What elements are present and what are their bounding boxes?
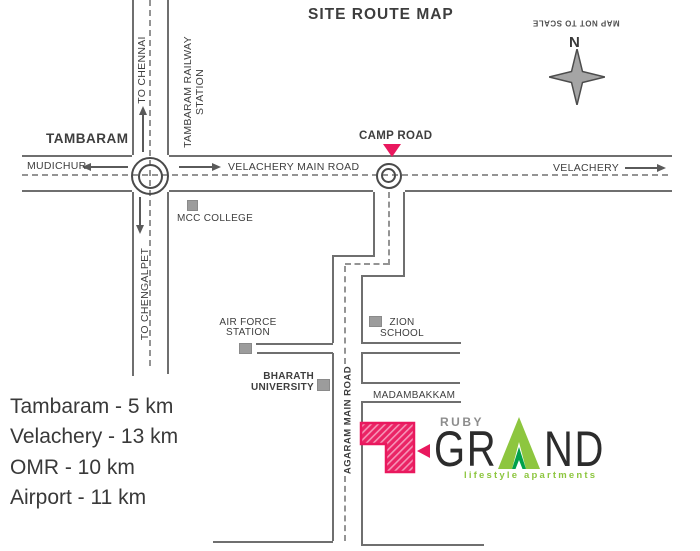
label-madambakkam: MADAMBAKKAM: [373, 390, 455, 401]
road-edge: [361, 544, 484, 546]
air-force-station-marker: [239, 343, 252, 354]
logo-brand-left: GR: [434, 424, 497, 474]
label-mcc-college: MCC COLLEGE: [177, 213, 253, 224]
label-velachery: VELACHERY: [553, 162, 619, 174]
road-edge: [167, 0, 169, 155]
road-edge: [213, 541, 333, 543]
road-centerline: [344, 266, 346, 364]
distance-item: Tambaram - 5 km: [10, 395, 173, 419]
road-edge: [169, 190, 373, 192]
logo-brand-right: ND: [544, 424, 605, 474]
page-title: SITE ROUTE MAP: [308, 6, 454, 24]
bharath-university-marker: [317, 379, 330, 391]
road-edge: [132, 0, 134, 155]
label-camp-road: CAMP ROAD: [359, 130, 432, 142]
project-site-marker: [359, 421, 417, 475]
road-edge: [373, 192, 375, 256]
label-agaram-main-road: AGARAM MAIN ROAD: [343, 366, 354, 474]
logo-tagline: lifestyle apartments: [464, 470, 597, 481]
camp-road-marker-icon: [383, 144, 401, 157]
road-centerline: [345, 263, 389, 265]
road-edge: [256, 343, 333, 345]
road-centerline: [388, 192, 390, 265]
tambaram-roundabout-inner: [138, 164, 163, 189]
arrow-down-icon: [139, 197, 141, 226]
label-bharath-university: BHARATH UNIVERSITY: [230, 372, 314, 393]
road-edge: [403, 192, 405, 276]
distance-item: Velachery - 13 km: [10, 425, 178, 449]
label-zion-school: ZION SCHOOL: [376, 317, 428, 339]
road-edge: [169, 155, 672, 157]
road-edge: [361, 342, 461, 344]
road-edge: [361, 401, 461, 403]
road-edge: [332, 255, 375, 257]
label-tambaram: TAMBARAM: [46, 131, 128, 146]
road-edge: [132, 192, 134, 376]
distance-item: Airport - 11 km: [10, 486, 146, 510]
road-edge: [361, 277, 363, 342]
road-edge: [405, 190, 672, 192]
label-mudichur: MUDICHUR: [27, 160, 87, 172]
label-velachery-main-road: VELACHERY MAIN ROAD: [228, 161, 359, 173]
mcc-college-marker: [187, 200, 198, 211]
road-edge: [167, 192, 169, 374]
site-pointer-icon: [417, 444, 430, 458]
map-scale-note: MAP NOT TO SCALE: [532, 19, 619, 28]
label-air-force-station: AIR FORCE STATION: [205, 318, 291, 338]
label-to-chengalpet: TO CHENGALPET: [139, 248, 151, 340]
road-edge: [22, 155, 132, 157]
arrow-up-icon: [142, 114, 144, 152]
road-edge: [361, 352, 460, 354]
road-edge: [332, 255, 334, 343]
road-edge: [361, 382, 460, 384]
road-centerline: [344, 476, 346, 541]
arrow-left-icon: [90, 166, 128, 168]
road-edge: [332, 353, 334, 541]
arrow-right-icon: [179, 166, 213, 168]
road-edge: [257, 352, 333, 354]
road-centerline: [22, 174, 668, 176]
label-tambaram-railway-station: TAMBARAM RAILWAY STATION: [182, 36, 206, 148]
road-edge: [22, 190, 132, 192]
label-to-chennai: TO CHENNAI: [136, 36, 148, 104]
logo-peak-icon: [496, 417, 542, 469]
distance-item: OMR - 10 km: [10, 456, 135, 480]
road-edge: [361, 275, 405, 277]
road-edge: [361, 352, 363, 382]
compass-icon: [549, 49, 605, 105]
site-route-map: SITE ROUTE MAP MAP NOT TO SCALE N: [0, 0, 700, 551]
arrow-right-icon: [625, 167, 658, 169]
camp-road-roundabout-inner: [381, 168, 396, 183]
